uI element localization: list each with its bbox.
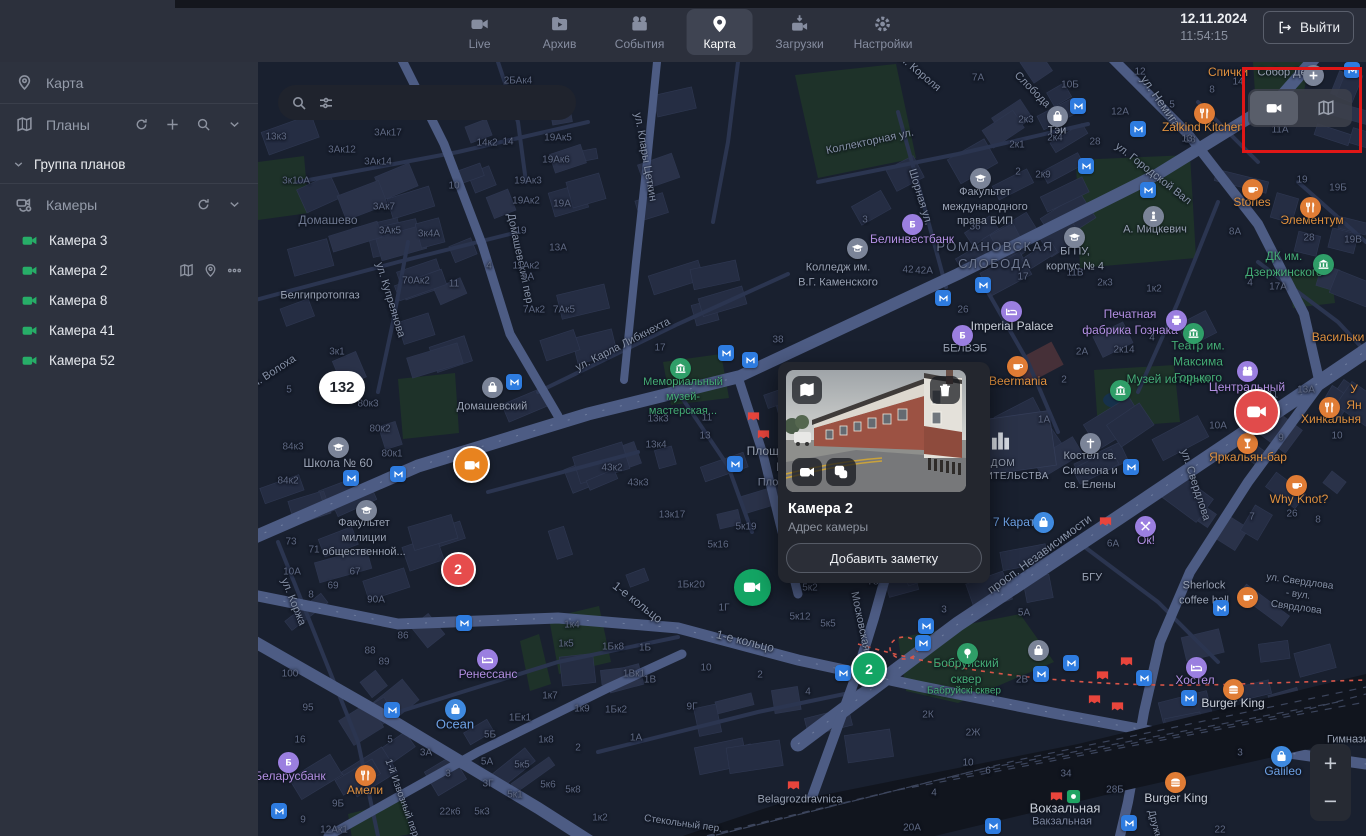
sidebar-plans-label: Планы [46, 117, 90, 133]
top-bar: LiveАрхивСобытияКартаЗагрузкиНастройки 1… [0, 0, 1366, 62]
sidebar-cameras-label: Камеры [46, 197, 97, 213]
tab-label: Настройки [854, 37, 913, 51]
camera-icon [21, 232, 38, 249]
sidebar: Карта Планы Группа планов Камеры Камера … [0, 62, 258, 836]
popup-camera-address: Адрес камеры [788, 520, 980, 534]
camera-2-marker-selected[interactable] [1234, 389, 1280, 435]
camera-name: Камера 8 [49, 293, 107, 308]
sidebar-item-map[interactable]: Карта [0, 62, 258, 103]
map-zoom-control: + − [1310, 744, 1351, 821]
search-input[interactable] [345, 94, 563, 111]
map-icon [799, 382, 815, 398]
events-icon [630, 14, 650, 34]
tab-settings[interactable]: Настройки [847, 9, 920, 55]
tab-map[interactable]: Карта [687, 9, 753, 55]
camera-name: Камера 52 [49, 353, 115, 368]
map-search-bar[interactable] [278, 85, 576, 120]
camera-list-item-камера-8[interactable]: Камера 8 [0, 285, 258, 315]
compare-view-button[interactable] [826, 458, 856, 486]
plan-group-label: Группа планов [34, 157, 125, 172]
toggle-map-view-button[interactable] [1302, 91, 1350, 125]
sidebar-item-plans[interactable]: Планы [0, 104, 258, 145]
map-icon [710, 14, 730, 34]
camera-icon [799, 464, 815, 480]
zoom-in-button[interactable]: + [1310, 744, 1351, 783]
tab-live[interactable]: Live [447, 9, 513, 55]
popup-camera-title: Камера 2 [788, 501, 980, 517]
camera-popup: Камера 2 Адрес камеры Добавить заметку [778, 362, 990, 583]
camera-thumbnail [786, 370, 966, 492]
camera-icon [21, 262, 38, 279]
search-icon[interactable] [196, 117, 211, 132]
open-live-view-button[interactable] [792, 458, 822, 486]
camera-name: Камера 3 [49, 233, 107, 248]
archive-icon [550, 14, 570, 34]
camera-icon [21, 292, 38, 309]
camera-icon [21, 322, 38, 339]
delete-camera-button[interactable] [930, 376, 960, 404]
tab-events[interactable]: События [607, 9, 673, 55]
camera-list-item-камера-3[interactable]: Камера 3 [0, 225, 258, 255]
settings-icon [873, 14, 893, 34]
show-on-plan-icon[interactable] [179, 263, 194, 278]
chevron-down-icon[interactable] [227, 117, 242, 132]
logout-button[interactable]: Выйти [1263, 11, 1354, 44]
picture-in-picture-icon [833, 464, 849, 480]
camera-icon [742, 577, 762, 597]
map-layer-toggle [1248, 89, 1352, 127]
logout-icon [1277, 20, 1292, 35]
camera-icon [1265, 99, 1283, 117]
map-pin-icon [16, 74, 33, 91]
tab-label: Live [469, 37, 491, 51]
search-icon [291, 95, 307, 111]
cluster-red-2[interactable]: 2 [441, 552, 476, 587]
tab-label: События [615, 37, 665, 51]
sidebar-map-label: Карта [46, 75, 83, 91]
camera-name: Камера 2 [49, 263, 107, 278]
cluster-132[interactable]: 132 [319, 371, 365, 404]
sidebar-plan-group[interactable]: Группа планов [0, 145, 258, 183]
tab-archive[interactable]: Архив [527, 9, 593, 55]
tab-label: Архив [543, 37, 577, 51]
map-icon [1317, 99, 1335, 117]
map-canvas[interactable]: Домашевский пер.ул. Карла Либкнехтаул. К… [258, 62, 1366, 836]
cluster-green-2[interactable]: 2 [851, 651, 887, 687]
more-options-icon[interactable] [227, 263, 242, 278]
filter-sliders-icon [318, 95, 334, 111]
add-note-button[interactable]: Добавить заметку [786, 543, 982, 573]
camera-icon [463, 456, 481, 474]
chevron-down-icon [12, 158, 25, 171]
show-on-plan-button[interactable] [792, 376, 822, 404]
sidebar-item-cameras[interactable]: Камеры [0, 184, 258, 225]
camera-icon [1245, 400, 1268, 423]
show-on-map-icon[interactable] [203, 263, 218, 278]
refresh-icon[interactable] [134, 117, 149, 132]
main-tabs: LiveАрхивСобытияКартаЗагрузкиНастройки [447, 7, 920, 57]
camera-list-item-камера-2[interactable]: Камера 2 [0, 255, 258, 285]
zoom-out-button[interactable]: − [1310, 783, 1351, 822]
tab-downloads[interactable]: Загрузки [767, 9, 833, 55]
logout-label: Выйти [1300, 20, 1340, 35]
camera-name: Камера 41 [49, 323, 115, 338]
refresh-icon[interactable] [196, 197, 211, 212]
camera-list: Камера 3Камера 2Камера 8Камера 41Камера … [0, 225, 258, 375]
add-plan-icon[interactable] [165, 117, 180, 132]
datetime: 12.11.2024 11:54:15 [1180, 10, 1247, 45]
camera-list-item-камера-52[interactable]: Камера 52 [0, 345, 258, 375]
chevron-down-icon[interactable] [227, 197, 242, 212]
downloads-icon [790, 14, 810, 34]
camera-marker-orange[interactable] [453, 446, 490, 483]
tab-label: Загрузки [775, 37, 823, 51]
date-text: 12.11.2024 [1180, 10, 1247, 28]
trash-icon [937, 382, 953, 398]
cameras-icon [16, 196, 33, 213]
toggle-cameras-view-button[interactable] [1250, 91, 1298, 125]
live-icon [470, 14, 490, 34]
camera-icon [21, 352, 38, 369]
camera-marker-green[interactable] [734, 569, 771, 606]
tab-label: Карта [704, 37, 736, 51]
camera-list-item-камера-41[interactable]: Камера 41 [0, 315, 258, 345]
plans-map-icon [16, 116, 33, 133]
time-text: 11:54:15 [1180, 28, 1247, 45]
window-top-strip [175, 0, 1366, 8]
